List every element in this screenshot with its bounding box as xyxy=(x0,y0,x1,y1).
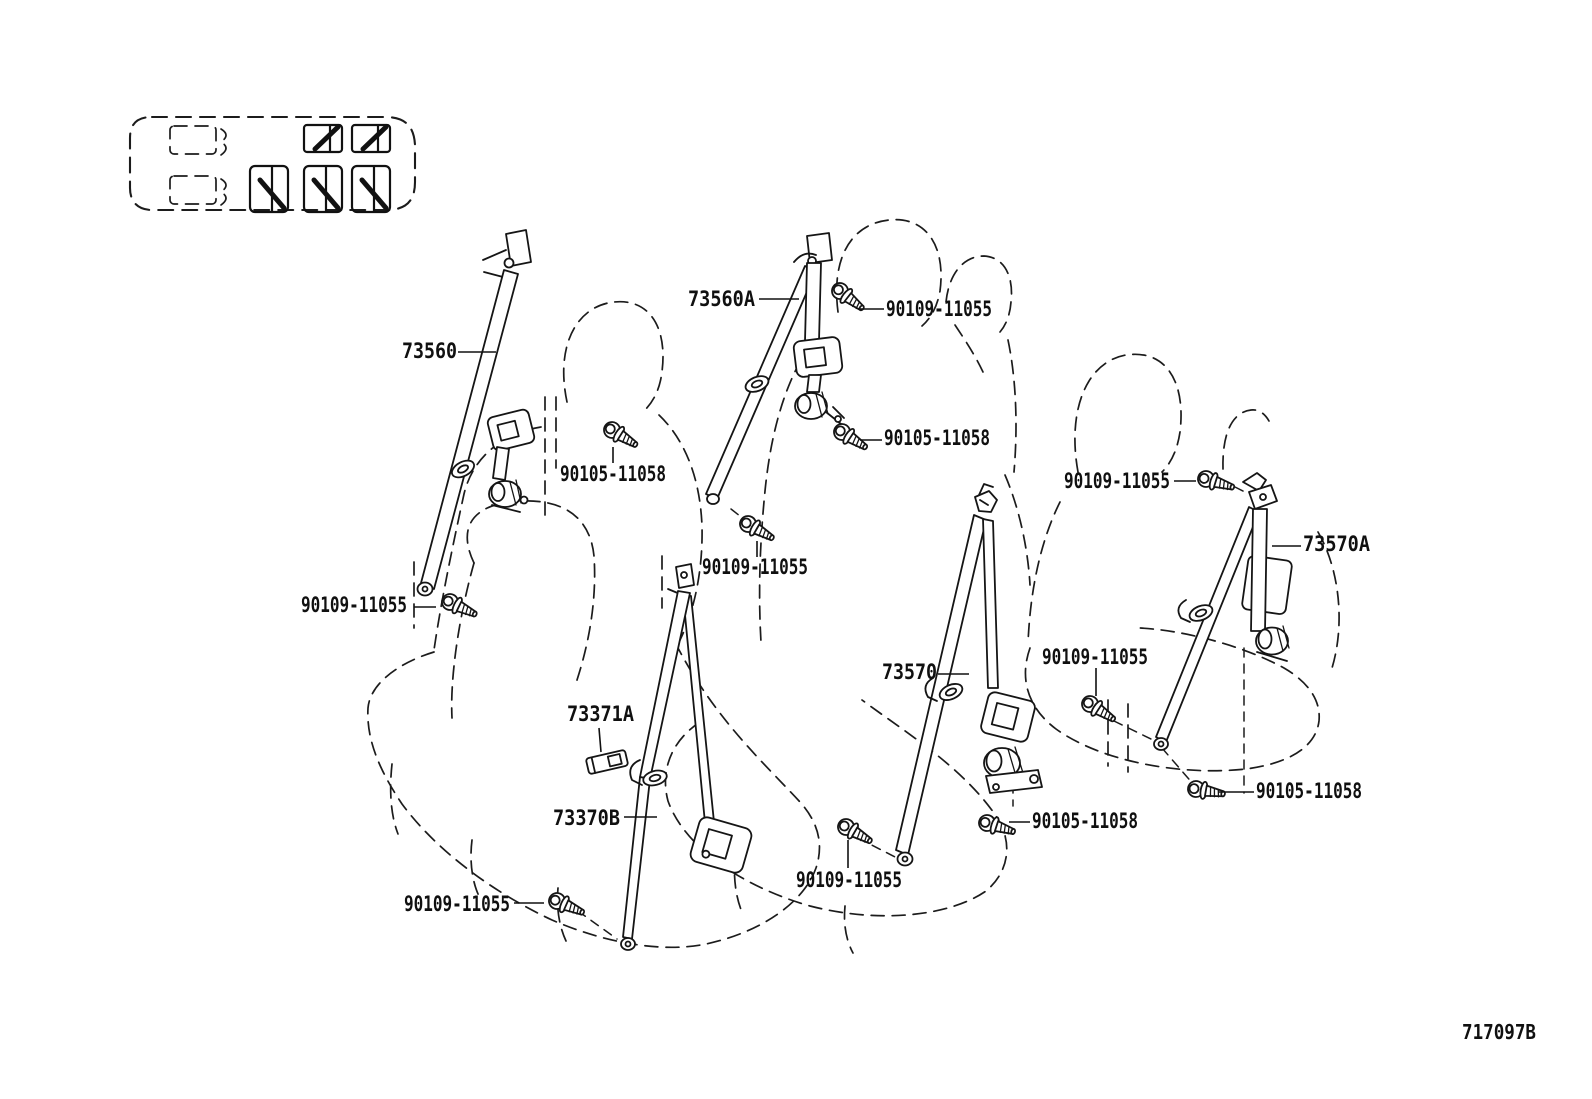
belted-seat-icon xyxy=(352,166,390,212)
belt-clip-73371a[interactable] xyxy=(586,750,629,775)
seatbelt-assy-73570a[interactable] xyxy=(1154,473,1293,750)
callout-73560a[interactable]: 73560A xyxy=(688,287,755,311)
belted-seat-icon xyxy=(304,125,342,152)
bolt-90109-11055-glyph[interactable] xyxy=(1079,692,1120,727)
callout-73560[interactable]: 73560 xyxy=(402,339,457,363)
bolt-90109-11055-glyph[interactable] xyxy=(828,279,868,316)
lap-belt-assy-73370b[interactable] xyxy=(621,564,753,950)
callout-73371a[interactable]: 73371A xyxy=(567,702,634,726)
callout-90109-11055-7[interactable]: 90109-11055 xyxy=(404,892,510,916)
belted-seat-icon xyxy=(304,166,342,212)
callout-90109-11055-6[interactable]: 90109-11055 xyxy=(796,868,902,892)
seat-outline-right xyxy=(1025,354,1339,772)
callout-leader-lines xyxy=(414,299,1301,903)
callout-73370b[interactable]: 73370B xyxy=(553,806,620,830)
bolt-90105-11058-glyph[interactable] xyxy=(1187,779,1227,802)
bolt-90109-11055-glyph[interactable] xyxy=(835,816,876,850)
callout-90105-11058-4[interactable]: 90105-11058 xyxy=(1032,809,1138,833)
bolt-90105-11058-glyph[interactable] xyxy=(601,418,642,452)
dashed-connector-lines xyxy=(578,487,1245,939)
parts-diagram-canvas: 73560 73560A 90109-11055 90105-11058 901… xyxy=(0,0,1592,1099)
bolt-90105-11058-glyph[interactable] xyxy=(831,420,872,455)
callout-73570a[interactable]: 73570A xyxy=(1303,532,1370,556)
callout-90109-11055-1[interactable]: 90109-11055 xyxy=(886,297,992,321)
callout-90109-11055-5[interactable]: 90109-11055 xyxy=(1042,645,1148,669)
van-layout-schematic xyxy=(130,117,415,212)
callout-90105-11058-2[interactable]: 90105-11058 xyxy=(560,462,666,486)
callout-90105-11058-1[interactable]: 90105-11058 xyxy=(884,426,990,450)
seatbelt-assy-73560[interactable] xyxy=(418,230,536,596)
bolt-90109-11055-glyph[interactable] xyxy=(1196,468,1237,495)
callout-90105-11058-3[interactable]: 90105-11058 xyxy=(1256,779,1362,803)
bolt-90109-11055-glyph[interactable] xyxy=(439,591,480,623)
drawing-number: 717097B xyxy=(1462,1020,1536,1044)
callout-90109-11055-4[interactable]: 90109-11055 xyxy=(1064,469,1170,493)
parts-diagram-page: 73560 73560A 90109-11055 90105-11058 901… xyxy=(0,0,1592,1099)
callout-73570[interactable]: 73570 xyxy=(882,660,937,684)
front-seat-icon xyxy=(170,126,226,155)
bolt-90109-11055-glyph[interactable] xyxy=(546,890,587,921)
belted-seat-icon xyxy=(250,166,288,212)
bolt-90105-11058-glyph[interactable] xyxy=(977,812,1018,840)
front-seat-icon xyxy=(170,176,226,205)
belted-seat-icon xyxy=(352,125,390,152)
callout-90109-11055-3[interactable]: 90109-11055 xyxy=(301,593,407,617)
seatbelt-assy-73560a[interactable] xyxy=(706,233,844,504)
callout-90109-11055-2[interactable]: 90109-11055 xyxy=(702,555,808,579)
